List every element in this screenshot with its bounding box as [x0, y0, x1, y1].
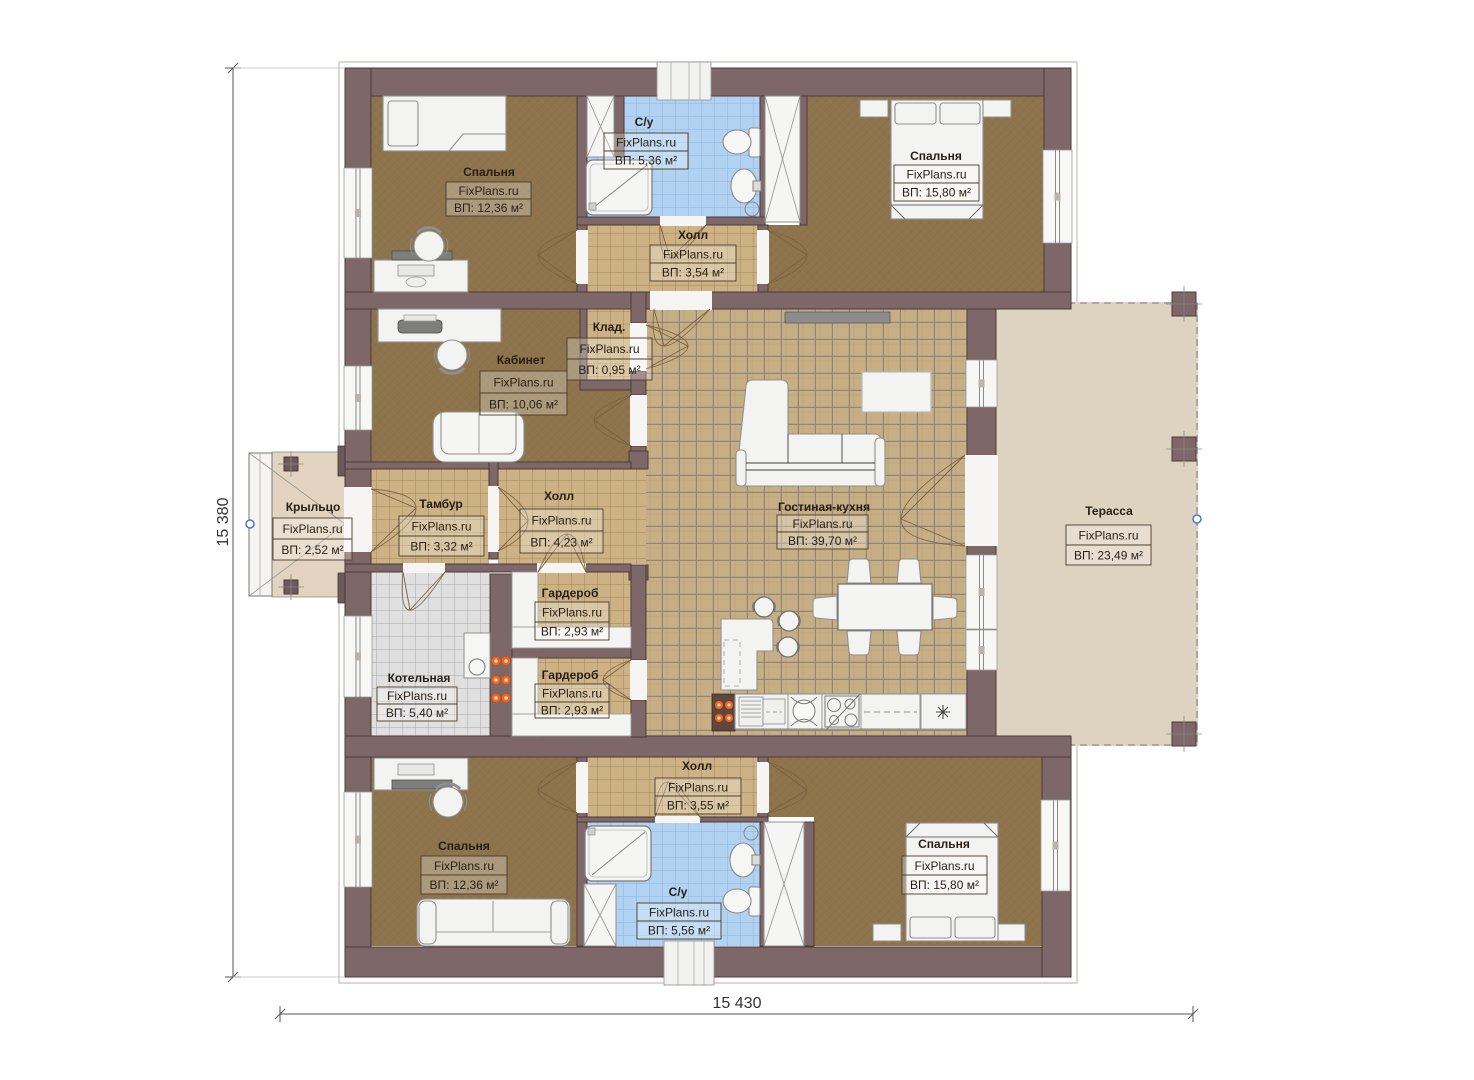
svg-text:ВП: 2,93 м²: ВП: 2,93 м² — [541, 704, 603, 718]
svg-text:ВП: 12,36 м²: ВП: 12,36 м² — [430, 878, 499, 892]
svg-text:FixPlans.ru: FixPlans.ru — [542, 687, 602, 701]
svg-text:FixPlans.ru: FixPlans.ru — [387, 689, 447, 703]
svg-text:Спальня: Спальня — [463, 165, 515, 179]
svg-text:Котельная: Котельная — [388, 671, 451, 685]
svg-text:FixPlans.ru: FixPlans.ru — [531, 514, 591, 528]
svg-text:Крыльцо: Крыльцо — [286, 500, 341, 514]
svg-text:ВП: 15,80 м²: ВП: 15,80 м² — [902, 186, 971, 200]
svg-text:FixPlans.ru: FixPlans.ru — [1078, 529, 1138, 543]
svg-text:ВП: 2,52 м²: ВП: 2,52 м² — [281, 543, 343, 557]
svg-text:ВП: 15,80 м²: ВП: 15,80 м² — [910, 878, 979, 892]
svg-text:Гардероб: Гардероб — [542, 586, 599, 600]
svg-text:Терасса: Терасса — [1085, 504, 1133, 518]
svg-text:FixPlans.ru: FixPlans.ru — [493, 376, 553, 390]
svg-text:ВП: 10,06 м²: ВП: 10,06 м² — [489, 398, 558, 412]
svg-text:Гостиная-кухня: Гостиная-кухня — [778, 500, 870, 514]
svg-text:FixPlans.ru: FixPlans.ru — [668, 781, 728, 795]
svg-text:FixPlans.ru: FixPlans.ru — [579, 342, 639, 356]
svg-text:С/у: С/у — [635, 115, 654, 129]
svg-text:ВП: 5,40 м²: ВП: 5,40 м² — [386, 706, 448, 720]
svg-text:FixPlans.ru: FixPlans.ru — [792, 517, 852, 531]
svg-text:15 430: 15 430 — [713, 995, 762, 1012]
svg-text:FixPlans.ru: FixPlans.ru — [282, 522, 342, 536]
svg-text:ВП: 4,23 м²: ВП: 4,23 м² — [530, 536, 592, 550]
svg-text:Холл: Холл — [682, 759, 712, 773]
svg-text:Холл: Холл — [678, 228, 708, 242]
svg-text:Гардероб: Гардероб — [542, 668, 599, 682]
svg-text:FixPlans.ru: FixPlans.ru — [906, 168, 966, 182]
svg-text:FixPlans.ru: FixPlans.ru — [663, 248, 723, 262]
svg-text:ВП: 3,55 м²: ВП: 3,55 м² — [667, 799, 729, 813]
svg-text:ВП: 0,95 м²: ВП: 0,95 м² — [578, 363, 640, 377]
svg-text:ВП: 12,36 м²: ВП: 12,36 м² — [454, 201, 523, 215]
svg-text:Холл: Холл — [544, 489, 574, 503]
svg-text:Спальня: Спальня — [918, 837, 970, 851]
svg-text:С/у: С/у — [669, 885, 688, 899]
svg-text:FixPlans.ru: FixPlans.ru — [616, 136, 676, 150]
svg-text:Спальня: Спальня — [910, 149, 962, 163]
svg-text:ВП: 5,56 м²: ВП: 5,56 м² — [648, 924, 710, 938]
svg-text:ВП: 23,49 м²: ВП: 23,49 м² — [1074, 549, 1143, 563]
svg-text:ВП: 39,70 м²: ВП: 39,70 м² — [788, 534, 857, 548]
svg-text:ВП: 2,93 м²: ВП: 2,93 м² — [541, 625, 603, 639]
svg-text:FixPlans.ru: FixPlans.ru — [542, 606, 602, 620]
svg-text:ВП: 3,32 м²: ВП: 3,32 м² — [410, 540, 472, 554]
svg-text:ВП: 3,54 м²: ВП: 3,54 м² — [662, 266, 724, 280]
svg-text:FixPlans.ru: FixPlans.ru — [649, 906, 709, 920]
svg-text:FixPlans.ru: FixPlans.ru — [434, 859, 494, 873]
svg-text:ВП: 5,36 м²: ВП: 5,36 м² — [615, 154, 677, 168]
svg-text:Клад.: Клад. — [593, 320, 626, 334]
svg-text:Кабинет: Кабинет — [497, 353, 546, 367]
svg-text:FixPlans.ru: FixPlans.ru — [914, 859, 974, 873]
svg-text:FixPlans.ru: FixPlans.ru — [411, 520, 471, 534]
svg-text:Спальня: Спальня — [438, 839, 490, 853]
svg-text:Тамбур: Тамбур — [419, 497, 463, 511]
svg-text:FixPlans.ru: FixPlans.ru — [458, 184, 518, 198]
svg-text:15 380: 15 380 — [215, 497, 232, 546]
